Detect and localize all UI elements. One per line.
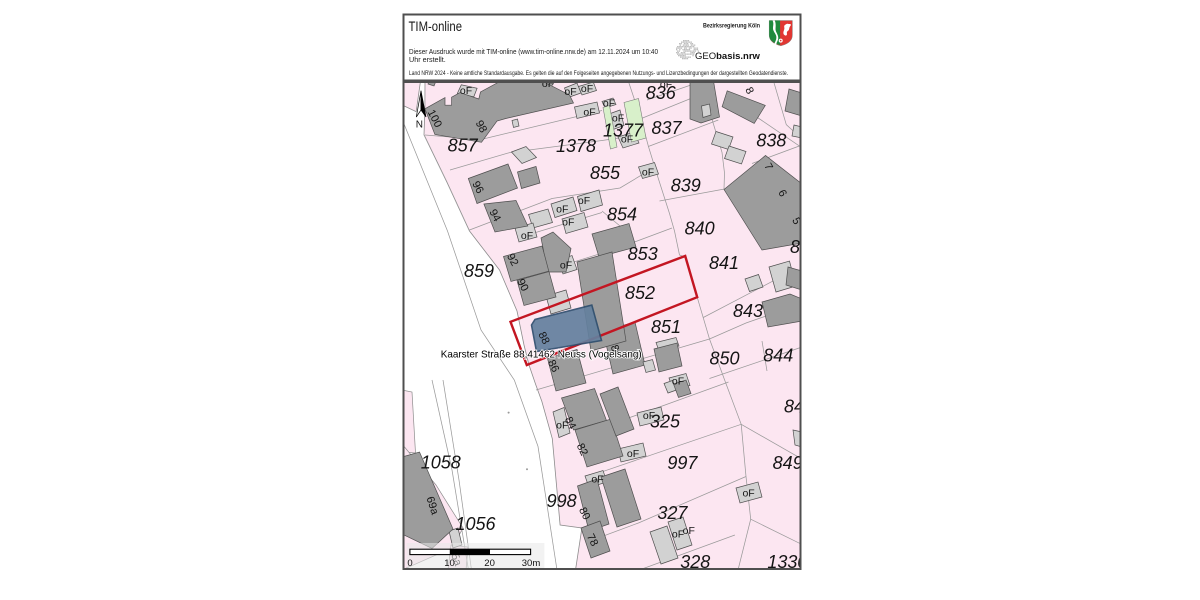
svg-text:327: 327 [657, 503, 688, 523]
svg-text:844: 844 [763, 345, 793, 365]
svg-text:838: 838 [756, 130, 786, 150]
svg-text:oF: oF [672, 376, 684, 388]
svg-text:oF: oF [627, 448, 639, 460]
svg-text:859: 859 [464, 261, 494, 281]
svg-text:Kaarster Straße 88,41462 Neuss: Kaarster Straße 88,41462 Neuss (Vogelsan… [441, 349, 642, 361]
svg-text:oF: oF [564, 86, 576, 98]
svg-text:oF: oF [621, 134, 633, 146]
svg-text:oF: oF [583, 106, 595, 118]
svg-text:oF: oF [612, 113, 624, 125]
svg-text:oF: oF [603, 98, 615, 110]
svg-text:oF: oF [643, 410, 655, 422]
svg-text:1056: 1056 [455, 514, 496, 534]
svg-text:851: 851 [651, 317, 681, 337]
svg-text:850: 850 [709, 349, 739, 369]
svg-text:997: 997 [667, 453, 698, 473]
svg-text:10: 10 [444, 558, 455, 569]
svg-text:845: 845 [784, 397, 815, 417]
svg-text:N: N [416, 120, 423, 131]
svg-text:837: 837 [651, 118, 682, 138]
svg-text:841: 841 [709, 253, 739, 273]
svg-text:oF: oF [683, 525, 695, 537]
svg-text:30m: 30m [522, 558, 541, 569]
svg-text:840: 840 [685, 219, 715, 239]
svg-text:853: 853 [628, 244, 658, 264]
svg-text:TIM-online: TIM-online [409, 19, 463, 34]
svg-text:oF: oF [562, 216, 574, 228]
svg-text:852: 852 [625, 283, 655, 303]
svg-text:842: 842 [790, 237, 820, 257]
svg-text:oF: oF [642, 166, 654, 178]
svg-text:20: 20 [484, 558, 495, 569]
svg-text:0: 0 [407, 558, 412, 569]
svg-text:oF: oF [460, 85, 472, 97]
svg-text:854: 854 [607, 205, 637, 225]
svg-text:Dieser Ausdruck wurde mit TIM-: Dieser Ausdruck wurde mit TIM-online (ww… [409, 47, 658, 56]
svg-text:855: 855 [590, 163, 621, 183]
svg-text:998: 998 [547, 491, 577, 511]
svg-text:oF: oF [521, 230, 533, 242]
svg-text:1058: 1058 [421, 452, 461, 472]
svg-text:oF: oF [742, 487, 754, 499]
svg-text:857: 857 [448, 136, 479, 156]
svg-text:Uhr erstellt.: Uhr erstellt. [409, 55, 446, 64]
svg-text:GEObasis.nrw: GEObasis.nrw [695, 51, 761, 62]
svg-text:oF: oF [556, 204, 568, 216]
svg-text:oF: oF [556, 420, 568, 432]
svg-text:oF: oF [581, 83, 593, 95]
svg-text:Land NRW 2024 - Keine amtliche: Land NRW 2024 - Keine amtliche Standarda… [409, 71, 788, 77]
svg-text:oF: oF [560, 259, 572, 271]
svg-text:Bezirksregierung Köln: Bezirksregierung Köln [703, 23, 760, 30]
svg-text:849: 849 [773, 453, 803, 473]
svg-text:843: 843 [733, 301, 763, 321]
svg-text:oF: oF [591, 474, 603, 486]
svg-text:839: 839 [671, 175, 701, 195]
svg-text:oF: oF [578, 195, 590, 207]
svg-text:1378: 1378 [556, 136, 596, 156]
